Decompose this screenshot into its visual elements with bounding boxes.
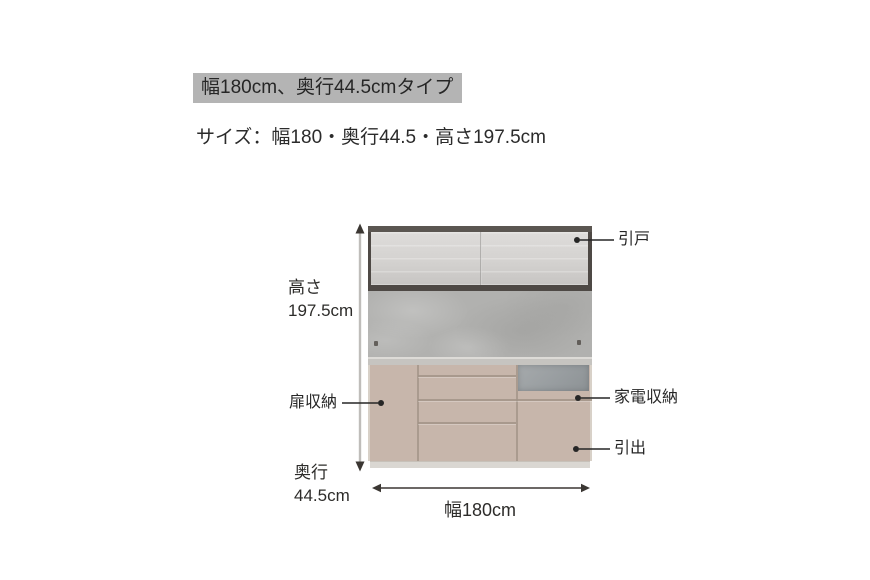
depth-dimension-title: 奥行: [294, 463, 328, 482]
height-dimension-value: 197.5cm: [288, 301, 353, 320]
drawer-groove-3: [418, 422, 516, 424]
sliding-door-label: 引戸: [618, 230, 650, 250]
upper-sliding-door-cabinet: [368, 226, 592, 291]
countertop: [368, 357, 592, 365]
size-summary: サイズ：幅180・奥行44.5・高さ197.5cm: [196, 122, 546, 149]
cabinet-left-edge: [368, 365, 370, 461]
depth-dimension-label: 奥行 44.5cm: [294, 461, 350, 507]
type-title-badge: 幅180cm、奥行44.5cmタイプ: [193, 73, 462, 103]
arrow-up-icon: [356, 224, 365, 234]
outlet-mark-right: [577, 340, 581, 345]
drawer-groove-1: [418, 375, 516, 377]
base-cabinet: [368, 365, 592, 461]
drawer-label: 引出: [614, 439, 646, 459]
sliding-door-divider: [480, 232, 482, 285]
plinth-base: [370, 461, 590, 468]
door-storage-label: 扉収納: [289, 393, 337, 413]
arrow-left-icon: [372, 484, 381, 492]
arrow-down-icon: [356, 462, 365, 472]
appliance-storage-label: 家電収納: [614, 388, 678, 408]
depth-dimension-value: 44.5cm: [294, 486, 350, 505]
height-dimension-title: 高さ: [288, 278, 322, 297]
cabinet-right-edge: [590, 365, 592, 461]
width-dimension-label: 幅180cm: [368, 496, 592, 522]
outlet-mark-left: [374, 341, 378, 346]
height-dimension-label: 高さ 197.5cm: [288, 276, 353, 322]
door-section-divider: [417, 365, 419, 461]
sliding-doors: [371, 232, 588, 285]
appliance-opening: [518, 365, 589, 391]
drawer-groove-2: [418, 399, 592, 401]
product-dimension-figure: 幅180cm、奥行44.5cmタイプ サイズ：幅180・奥行44.5・高さ197…: [0, 0, 870, 580]
arrow-right-icon: [581, 484, 590, 492]
backsplash-panel: [368, 291, 592, 357]
